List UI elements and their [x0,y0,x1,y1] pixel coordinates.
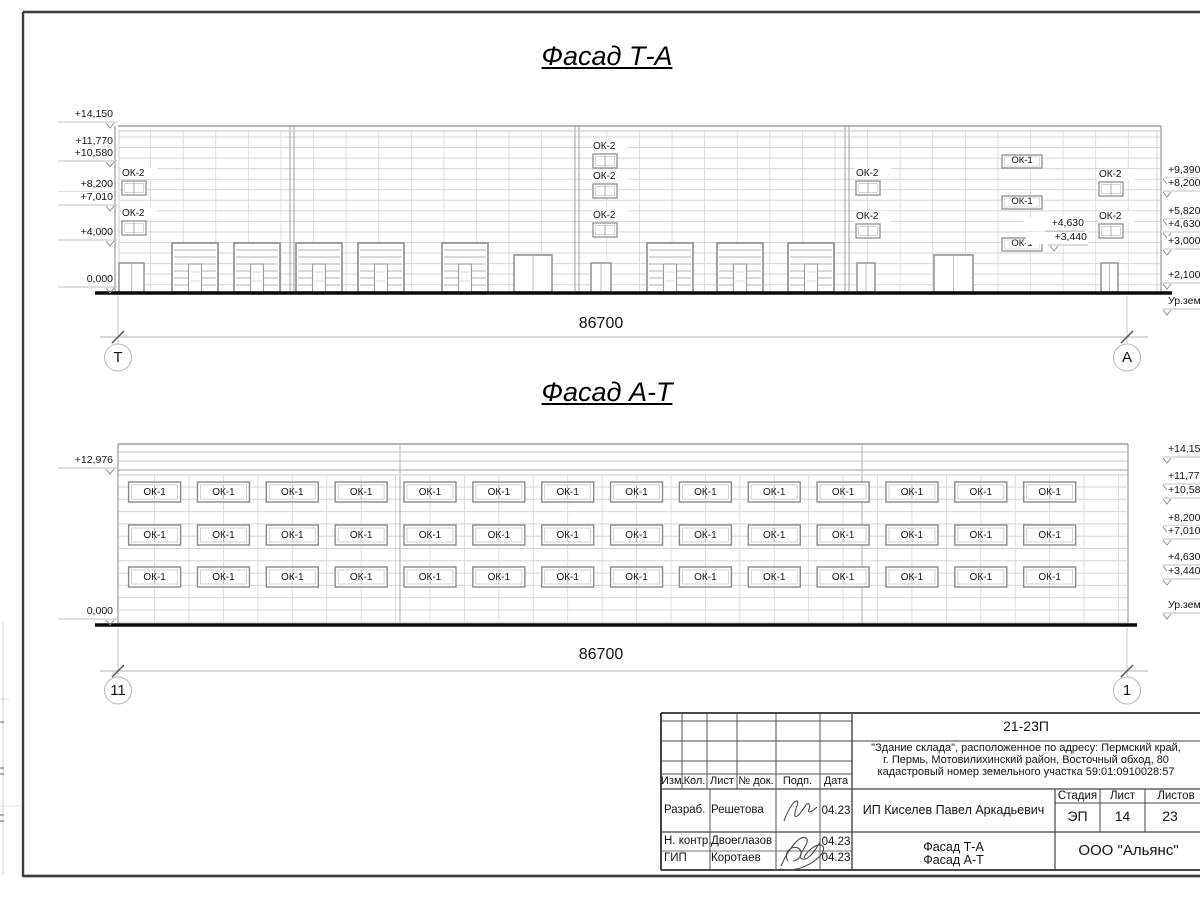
stamp-header-kol: Кол. [682,775,707,787]
elevation-mark: +8,200 [1167,178,1200,190]
window-label-ok1: ОК-1 [266,572,318,583]
signature-3 [780,845,824,870]
facade-ta-dimension: 86700 [520,315,682,333]
window-label-ok1: ОК-1 [679,530,731,541]
elevation-mark: +7,010 [40,192,114,204]
axis-label-t: Т [103,350,133,367]
drawing-title-line-2: Фасад А-Т [852,854,1055,868]
facade-at-dimension: 86700 [520,646,682,664]
window-label-ok2: ОК-2 [592,141,628,152]
elevation-mark: +8,200 [40,179,114,191]
window-label-ok1: ОК-1 [817,572,869,583]
stage-value: ЭП [1055,809,1100,824]
elevation-mark: +4,630 [1167,552,1200,564]
elevation-mark: +3,440 [1167,566,1200,578]
stamp-date-1: 04.23 [820,805,852,818]
garage-wicket-door [251,264,264,292]
window-label-ok1: ОК-1 [1024,530,1076,541]
window-label-ok2: ОК-2 [855,211,891,222]
garage-wicket-door [375,264,388,292]
window-label-ok1: ОК-1 [404,487,456,498]
window-label-ok1: ОК-1 [886,530,938,541]
elevation-flag-icon [106,206,114,211]
window-label-ok1: ОК-1 [611,487,663,498]
window-label-ok1: ОК-1 [542,572,594,583]
elevation-flag-icon [106,162,114,167]
garage-wicket-door [734,264,747,292]
elevation-flag-icon [1163,458,1171,463]
window-label-ok1: ОК-1 [1024,572,1076,583]
facade-ta-title: Фасад Т-А [447,42,767,72]
garage-wicket-door [805,264,818,292]
window-label-ok1: ОК-1 [129,572,181,583]
garage-wicket-door [459,264,472,292]
elevation-mark: +4,630 [1167,219,1200,231]
window-label-ok1: ОК-1 [1002,156,1042,166]
elevation-mark: +12,976 [40,455,114,467]
stamp-header-data: Дата [820,775,852,787]
window-label-ok1: ОК-1 [1002,197,1042,207]
window-label-ok2: ОК-2 [121,168,157,179]
elevation-flag-icon [106,469,114,474]
window-label-ok1: ОК-1 [266,487,318,498]
stamp-role-3: ГИП [664,852,687,865]
elevation-mark: +11,770 [40,136,114,148]
elevation-flag-icon [1163,540,1171,545]
drawing-sheet: Фасад Т-А Фасад А-Т 86700 86700 Т А 11 1… [0,0,1200,900]
elevation-flag-icon [1163,614,1171,619]
elevation-mark: +14,150 [40,109,114,121]
window-label-ok1: ОК-1 [748,572,800,583]
window-label-ok1: ОК-1 [748,530,800,541]
elevation-mark: Ур.земли [1167,296,1200,308]
window-label-ok1: ОК-1 [197,487,249,498]
window-label-ok1: ОК-1 [886,487,938,498]
elevation-mark: +10,580 [1167,485,1200,497]
stamp-role-2: Н. контр. [664,835,711,848]
window-label-ok2: ОК-2 [592,171,628,182]
window-label-ok2: ОК-2 [121,208,157,219]
elevation-flag-icon [1163,284,1171,289]
elevation-mark: +11,770 [1167,471,1200,483]
garage-wicket-door [313,264,326,292]
elevation-flag-icon [1050,246,1058,251]
window-label-ok1: ОК-1 [611,530,663,541]
sheets-total: 23 [1145,809,1195,824]
window-label-ok1: ОК-1 [335,530,387,541]
elevation-flag-icon [106,241,114,246]
elevation-mark: +10,580 [40,148,114,160]
stage-header: Стадия [1055,790,1100,803]
window-label-ok1: ОК-1 [197,572,249,583]
elevation-mark: +8,200 [1167,513,1200,525]
elevation-flag-icon [1163,499,1171,504]
window-label-ok1: ОК-1 [955,530,1007,541]
window-label-ok2: ОК-2 [1098,211,1134,222]
elevation-mark: +2,100 [1167,270,1200,282]
window-label-ok1: ОК-1 [404,572,456,583]
organization-name: ООО "Альянс" [1057,843,1200,860]
stamp-header-izm: Изм. [661,775,682,787]
elevation-mark: +3,000 [1167,236,1200,248]
window-label-ok1: ОК-1 [197,530,249,541]
stamp-date-2: 04.23 [820,836,852,849]
window-label-ok1: ОК-1 [1024,487,1076,498]
window-label-ok1: ОК-1 [886,572,938,583]
window-label-ok1: ОК-1 [335,572,387,583]
window-label-ok1: ОК-1 [542,487,594,498]
window-label-ok1: ОК-1 [955,572,1007,583]
elevation-mark: 0,000 [40,274,114,286]
window-label-ok1: ОК-1 [129,530,181,541]
window-label-ok2: ОК-2 [592,210,628,221]
stamp-name-2: Двоеглазов [711,835,772,848]
sheet-header: Лист [1100,790,1145,803]
window-label-ok1: ОК-1 [679,487,731,498]
elevation-mark: +4,630 [1023,218,1085,230]
window-label-ok1: ОК-1 [748,487,800,498]
elevation-flag-icon [1163,310,1171,315]
window-label-ok2: ОК-2 [855,168,891,179]
elevation-mark: +3,440 [1026,232,1088,244]
elevation-flag-icon [1163,580,1171,585]
garage-wicket-door [189,264,202,292]
window-label-ok1: ОК-1 [611,572,663,583]
elevation-mark: Ур.земли [1167,600,1200,612]
axis-label-1: 1 [1112,683,1142,700]
stamp-date-3: 04.23 [820,852,852,865]
window-label-ok1: ОК-1 [955,487,1007,498]
window-label-ok1: ОК-1 [473,572,525,583]
signature-1 [784,801,817,821]
window-label-ok1: ОК-1 [817,487,869,498]
elevation-mark: +5,820 [1167,206,1200,218]
stamp-role-1: Разраб. [664,804,705,817]
window-label-ok1: ОК-1 [404,530,456,541]
stamp-header-podp: Подп. [775,775,820,787]
client-name: ИП Киселев Павел Аркадьевич [852,804,1055,818]
sheets-total-header: Листов [1145,790,1200,803]
project-description-line-2: г. Пермь, Мотовилихинский район, Восточн… [856,754,1196,766]
window-label-ok1: ОК-1 [542,530,594,541]
window-label-ok1: ОК-1 [129,487,181,498]
elevation-mark: +4,000 [40,227,114,239]
stamp-header-list: Лист [707,775,737,787]
elevation-mark: 0,000 [40,606,114,618]
elevation-mark: +9,390 [1167,165,1200,177]
window-label-ok1: ОК-1 [817,530,869,541]
axis-label-a: А [1112,350,1142,367]
facade-at-title: Фасад А-Т [447,378,767,408]
elevation-flag-icon [106,123,114,128]
elevation-mark: +14,150 [1167,444,1200,456]
elevation-flag-icon [1163,250,1171,255]
signatures [780,801,824,870]
window-label-ok1: ОК-1 [679,572,731,583]
window-label-ok1: ОК-1 [335,487,387,498]
elevation-flag-icon [1163,192,1171,197]
window-label-ok1: ОК-1 [473,487,525,498]
window-label-ok1: ОК-1 [266,530,318,541]
stamp-name-3: Коротаев [711,852,761,865]
stamp-header-ndok: № док. [737,775,775,787]
window-label-ok2: ОК-2 [1098,169,1134,180]
axis-label-11: 11 [103,683,133,700]
stamp-name-1: Решетова [711,804,764,817]
garage-wicket-door [664,264,677,292]
sheet-number: 14 [1100,809,1145,824]
project-description-line-3: кадастровый номер земельного участка 59:… [856,766,1196,778]
elevation-mark: +7,010 [1167,526,1200,538]
project-description-line-1: "Здание склада", расположенное по адресу… [856,742,1196,754]
document-code: 21-23П [852,719,1200,734]
window-label-ok1: ОК-1 [473,530,525,541]
